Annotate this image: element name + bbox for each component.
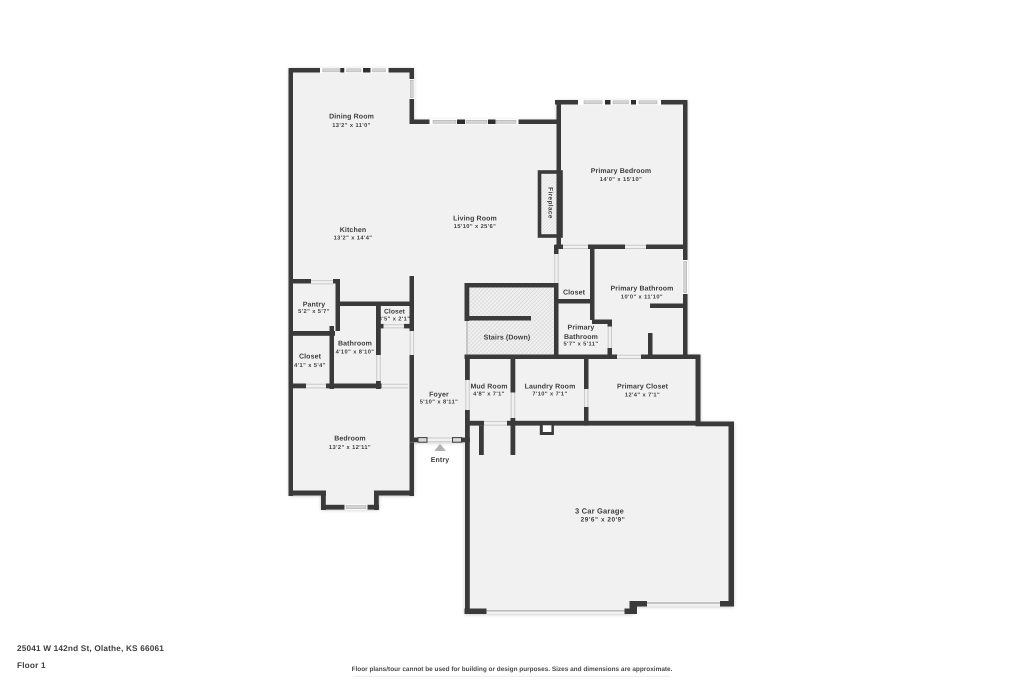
svg-text:10'0" x 11'10": 10'0" x 11'10"	[621, 295, 663, 301]
svg-text:25041 W 142nd St, Olathe, KS 6: 25041 W 142nd St, Olathe, KS 66061	[17, 644, 164, 653]
svg-text:Living Room: Living Room	[453, 215, 497, 223]
svg-text:29'6" x 20'9": 29'6" x 20'9"	[581, 517, 626, 524]
svg-text:Stairs (Down): Stairs (Down)	[484, 334, 531, 342]
svg-text:13'2" x 11'0": 13'2" x 11'0"	[332, 123, 371, 129]
svg-text:Primary Closet: Primary Closet	[617, 383, 669, 391]
svg-text:Pantry: Pantry	[303, 302, 326, 309]
svg-text:5'7" x 5'11": 5'7" x 5'11"	[564, 342, 599, 348]
svg-text:15'10" x 25'6": 15'10" x 25'6"	[454, 224, 496, 230]
svg-text:Primary: Primary	[568, 324, 595, 332]
svg-text:5'10" x 8'11": 5'10" x 8'11"	[420, 400, 459, 406]
svg-text:Primary Bathroom: Primary Bathroom	[611, 285, 674, 293]
svg-text:14'0" x 15'10": 14'0" x 15'10"	[600, 177, 642, 183]
svg-text:Bedroom: Bedroom	[334, 435, 366, 443]
svg-text:Floor 1: Floor 1	[17, 661, 46, 670]
svg-text:Dining Room: Dining Room	[329, 113, 374, 121]
svg-text:Closet: Closet	[384, 309, 406, 316]
svg-text:12'4" x 7'1": 12'4" x 7'1"	[625, 393, 660, 399]
svg-text:Laundry Room: Laundry Room	[525, 383, 576, 391]
svg-text:13'2" x 12'11": 13'2" x 12'11"	[329, 445, 371, 451]
svg-text:Mud Room: Mud Room	[470, 383, 507, 391]
svg-text:Closet: Closet	[299, 353, 322, 361]
svg-text:Bathroom: Bathroom	[338, 340, 372, 348]
svg-text:7'10" x 7'1": 7'10" x 7'1"	[532, 392, 567, 398]
svg-text:4'8" x 7'1": 4'8" x 7'1"	[473, 392, 505, 398]
svg-text:3'5" x 2'1": 3'5" x 2'1"	[379, 316, 411, 322]
svg-text:Kitchen: Kitchen	[340, 226, 367, 234]
svg-text:Entry: Entry	[431, 457, 450, 464]
svg-text:4'10" x 8'10": 4'10" x 8'10"	[336, 350, 375, 356]
svg-text:3 Car Garage: 3 Car Garage	[575, 506, 624, 515]
svg-text:Foyer: Foyer	[429, 392, 449, 399]
svg-text:13'2" x 14'4": 13'2" x 14'4"	[334, 236, 373, 242]
svg-text:4'1" x 5'4": 4'1" x 5'4"	[294, 363, 326, 369]
svg-text:Primary Bedroom: Primary Bedroom	[591, 167, 652, 175]
svg-text:Fireplace: Fireplace	[547, 187, 554, 219]
svg-text:Bathroom: Bathroom	[564, 333, 598, 341]
svg-text:Closet: Closet	[563, 289, 586, 297]
svg-text:5'2" x 5'7": 5'2" x 5'7"	[298, 309, 330, 315]
svg-text:Floor plans/tour cannot be use: Floor plans/tour cannot be used for buil…	[352, 666, 673, 673]
